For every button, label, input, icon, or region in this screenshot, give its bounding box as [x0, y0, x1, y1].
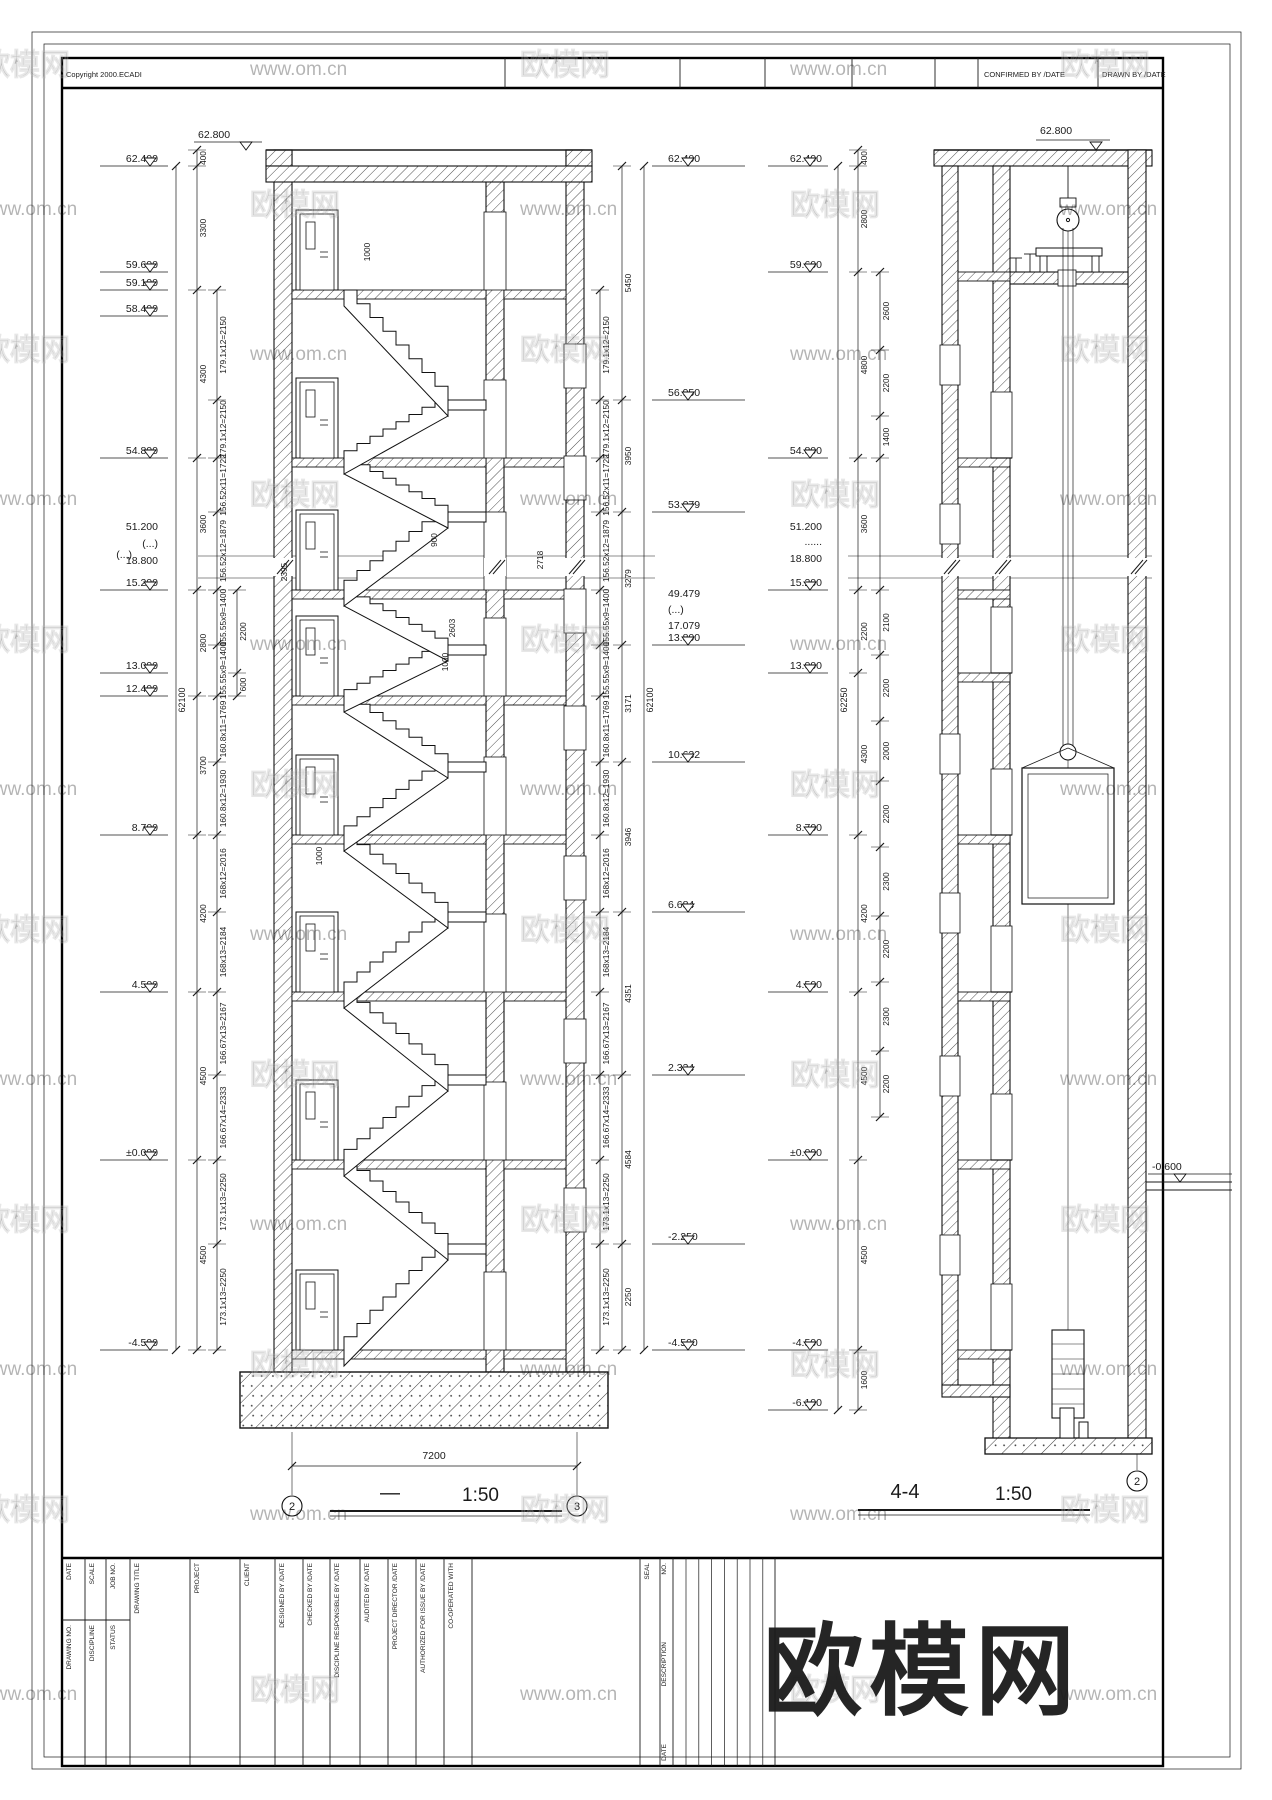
section-scale: 1:50 — [462, 1485, 499, 1506]
floor-dim: 3600 — [859, 514, 869, 533]
opening — [484, 380, 506, 458]
watermark-tile: www.om.cn — [249, 59, 347, 80]
opening — [484, 757, 506, 835]
door-vision-panel — [306, 522, 315, 549]
floor-dim: 3300 — [198, 218, 208, 237]
stair-flight — [344, 590, 448, 661]
title-cell-label: JOB NO. — [110, 1563, 117, 1589]
floor-dim: 4584 — [623, 1150, 633, 1169]
door-leaf — [300, 214, 334, 290]
wall — [292, 992, 486, 1001]
wall — [292, 290, 486, 299]
stair-flight — [344, 835, 448, 928]
car-sheave — [1060, 744, 1076, 760]
elevation-label: 18.800 — [790, 553, 822, 565]
section-title: 4-4 — [891, 1481, 920, 1503]
wall — [504, 992, 566, 1001]
title-column-label: AUDITED BY /DATE — [364, 1562, 371, 1622]
watermark-tile: www.om.cn — [0, 1359, 77, 1380]
overall-dim: 62100 — [645, 687, 655, 712]
watermark-tile: 欧模网 — [1060, 624, 1150, 657]
watermark-tile: 欧模网 — [790, 189, 880, 222]
inner-dim: 1000 — [314, 846, 324, 865]
floor-dim: 3600 — [198, 514, 208, 533]
opening — [484, 512, 506, 590]
title-column-label: CLIENT — [244, 1563, 251, 1586]
watermark-tile: 欧模网 — [0, 1494, 70, 1527]
title-column-label: PROJECT DIRECTOR /DATE — [392, 1562, 399, 1649]
elevation-label: -0.600 — [1152, 1161, 1182, 1173]
watermark-tile: 欧模网 — [1060, 1204, 1150, 1237]
floor-dim: 3279 — [623, 569, 633, 588]
window-opening — [940, 1056, 960, 1096]
wall — [958, 992, 1010, 1001]
wall — [958, 1160, 1010, 1169]
watermark-tile: 欧模网 — [1060, 49, 1150, 82]
stair-flight — [344, 1160, 448, 1260]
elevation-label: 51.200 — [126, 521, 158, 533]
stair-landing — [448, 512, 486, 522]
floor-dim: 4300 — [198, 364, 208, 383]
door-vision-panel — [306, 390, 315, 417]
opening — [484, 914, 506, 992]
title-cell-label: STATUS — [110, 1624, 117, 1649]
floor-dim: 400 — [859, 151, 869, 165]
stair-flight — [344, 696, 448, 778]
level-flag-icon — [240, 142, 252, 150]
stair-flight — [344, 1244, 448, 1366]
floor-dim: 4500 — [859, 1245, 869, 1264]
elevation-label: (...) — [142, 538, 158, 550]
inner-dim: 2718 — [535, 550, 545, 569]
opening-dim: 2200 — [881, 678, 891, 697]
watermark-tile: www.om.cn — [249, 1504, 347, 1525]
floor-dim: 4351 — [623, 984, 633, 1003]
wall — [266, 166, 592, 182]
stair-flight — [344, 992, 448, 1091]
wall — [504, 458, 566, 467]
inner-dim: 900 — [429, 533, 439, 547]
watermark-tile: www.om.cn — [519, 1069, 617, 1090]
shaft-door-opening — [991, 607, 1012, 673]
watermark-tile: www.om.cn — [789, 634, 887, 655]
watermark-tile: 欧模网 — [250, 479, 340, 512]
buffer — [1060, 1408, 1074, 1438]
door-vision-panel — [306, 222, 315, 249]
watermark-tile: www.om.cn — [249, 1214, 347, 1235]
floor-dim: 4200 — [859, 904, 869, 923]
window-opening — [940, 1235, 960, 1275]
wall — [292, 1160, 486, 1169]
confirmed-by-label: CONFIRMED BY /DATE — [984, 70, 1065, 79]
wall — [958, 458, 1010, 467]
watermark-tile: 欧模网 — [250, 1059, 340, 1092]
watermark-tile: 欧模网 — [520, 1204, 610, 1237]
machine-post — [1092, 256, 1099, 272]
watermark-tile: 欧模网 — [520, 624, 610, 657]
elevation-label: 49.479 — [668, 588, 700, 600]
flight-dim: 166.67x13=2167 — [601, 1002, 611, 1064]
opening-dim: 2200 — [881, 1074, 891, 1093]
watermark-tile: www.om.cn — [1059, 1069, 1157, 1090]
flight-dim: 160.8x12=1930 — [218, 769, 228, 827]
wall — [504, 1160, 566, 1169]
title-column-label: AUTHORIZED FOR ISSUE BY /DATE — [420, 1562, 427, 1673]
flight-dim: 166.67x14=2333 — [218, 1086, 228, 1148]
level-flag-icon — [1090, 142, 1102, 150]
title-column-label: DESIGNED BY /DATE — [279, 1562, 286, 1627]
floor-dim: 4500 — [198, 1245, 208, 1264]
watermark-tile: www.om.cn — [789, 1214, 887, 1235]
window-opening — [564, 856, 586, 900]
watermark-tile: 欧模网 — [790, 1349, 880, 1382]
floor-dim: 3171 — [623, 694, 633, 713]
line — [1068, 748, 1114, 768]
flight-dim: 156.52x11=1722 — [218, 454, 228, 516]
watermark-large: 欧模网 — [763, 1616, 1081, 1728]
flight-dim: 173.1x13=2250 — [218, 1268, 228, 1326]
cad-canvas: Copyright 2000.ECADI CONFIRMED BY /DATE … — [0, 0, 1272, 1800]
flight-dim: 168x13=2184 — [218, 926, 228, 977]
wall — [934, 150, 1152, 166]
opening-dim: 2300 — [881, 1007, 891, 1026]
wall — [292, 835, 486, 844]
section-scale: 1:50 — [995, 1484, 1032, 1505]
watermark-tile: 欧模网 — [250, 189, 340, 222]
watermark-tile: www.om.cn — [519, 489, 617, 510]
elevation-label: 62.800 — [1040, 125, 1072, 137]
machine-post — [1040, 256, 1047, 272]
window-opening — [940, 734, 960, 774]
level-flag-icon — [1174, 1174, 1186, 1182]
flight-dim: 160.8x11=1769 — [601, 700, 611, 757]
flight-dim: 179.1x12=2150 — [218, 400, 228, 458]
title-cell-label: DATE — [66, 1562, 73, 1580]
watermark-tile: www.om.cn — [0, 1684, 77, 1705]
floor-dim: 4300 — [859, 744, 869, 763]
machine-bedplate — [1036, 248, 1102, 256]
watermark-tile: www.om.cn — [0, 489, 77, 510]
watermark-tile: www.om.cn — [519, 779, 617, 800]
buffer — [1079, 1422, 1088, 1438]
flight-dim: 166.67x14=2333 — [601, 1086, 611, 1148]
flight-dim: 155.55x9=1400 — [218, 641, 228, 699]
flight-dim: 156.52x12=1879 — [601, 520, 611, 582]
watermark-tile: 欧模网 — [250, 769, 340, 802]
wall — [292, 696, 486, 705]
floor-dim: 4200 — [198, 904, 208, 923]
window-opening — [940, 893, 960, 933]
stair-landing — [448, 1075, 486, 1085]
wall — [958, 835, 1010, 844]
title-column-label: CHECKED BY /DATE — [307, 1562, 314, 1625]
overall-dim: 62250 — [839, 687, 849, 712]
flight-dim: 166.67x13=2167 — [218, 1002, 228, 1064]
watermark-tile: 欧模网 — [790, 1059, 880, 1092]
watermark-tile: www.om.cn — [249, 344, 347, 365]
door-leaf — [300, 1274, 334, 1350]
inner-dim: 1000 — [362, 242, 372, 261]
flight-dim: 173.1x13=2250 — [601, 1268, 611, 1326]
line — [1022, 748, 1068, 768]
flight-dim: 155.55x9=1400 — [218, 588, 228, 646]
opening-dim: 2100 — [881, 613, 891, 632]
watermark-tile: 欧模网 — [1060, 1494, 1150, 1527]
stair-landing — [448, 762, 486, 772]
opening-dim: 1400 — [881, 427, 891, 446]
door-leaf — [300, 1084, 334, 1160]
flight-dim: 168x12=2016 — [601, 848, 611, 899]
watermark-tile: www.om.cn — [789, 59, 887, 80]
stair-landing — [448, 1244, 486, 1254]
watermark-tile: 欧模网 — [0, 49, 70, 82]
watermark-tile: 欧模网 — [0, 1204, 70, 1237]
door-leaf — [300, 620, 334, 696]
opening-dim: 2600 — [881, 301, 891, 320]
floor-dim: 3700 — [198, 756, 208, 775]
wall — [566, 150, 592, 166]
wall — [292, 458, 486, 467]
watermark-tile: 欧模网 — [1060, 914, 1150, 947]
shaft-door-opening — [991, 1284, 1012, 1350]
copyright-text: Copyright 2000.ECADI — [66, 70, 142, 79]
floor-dim: 2800 — [198, 633, 208, 652]
title-column-label: CO-OPERATED WITH — [448, 1563, 455, 1629]
watermark-tile: www.om.cn — [519, 199, 617, 220]
stair-flight — [344, 458, 448, 528]
watermark-tile: 欧模网 — [250, 1674, 340, 1707]
watermark-tile: www.om.cn — [519, 1684, 617, 1705]
stair-section-drawing: 62.40059.60059.10058.40054.80051.200(...… — [100, 129, 745, 1516]
floor-dim: 3950 — [623, 446, 633, 465]
header-strip: Copyright 2000.ECADI CONFIRMED BY /DATE … — [66, 70, 1166, 79]
door-leaf — [300, 514, 334, 590]
title-cell-label: SCALE — [89, 1562, 96, 1584]
opening-dim: 2200 — [881, 373, 891, 392]
pit-floor — [985, 1438, 1152, 1454]
inner-dim: 2603 — [447, 618, 457, 637]
opening — [484, 1082, 506, 1160]
watermark-tile: 欧模网 — [1060, 334, 1150, 367]
seal-label: SEAL — [644, 1563, 651, 1580]
watermark-tile: www.om.cn — [249, 634, 347, 655]
wall — [958, 590, 1010, 599]
wall — [274, 150, 292, 1372]
generated-drawing: 62.40059.60059.10058.40054.80051.200(...… — [0, 49, 1232, 1766]
wall — [958, 673, 1010, 682]
flight-dim: 173.1x13=2250 — [218, 1173, 228, 1231]
opening-dim: 2300 — [881, 872, 891, 891]
break-note: (...) — [116, 549, 132, 561]
window-opening — [940, 504, 960, 544]
window-opening — [940, 345, 960, 385]
shaft-door-opening — [991, 392, 1012, 458]
watermark-tile: www.om.cn — [249, 924, 347, 945]
wall — [266, 150, 292, 166]
stair-landing — [448, 645, 486, 655]
wall — [958, 272, 1010, 281]
title-block: DATESCALEJOB NO.DRAWING NO.DISCIPLINESTA… — [62, 1558, 775, 1766]
elevation-label: 17.079 — [668, 620, 700, 632]
title-cell-label: DISCIPLINE — [89, 1624, 96, 1661]
shaft-door-opening — [991, 926, 1012, 992]
wall — [504, 696, 566, 705]
watermark-tile: 欧模网 — [520, 914, 610, 947]
wall — [958, 1350, 1010, 1359]
inner-dim: 2395 — [279, 562, 289, 581]
drawing-sheet: Copyright 2000.ECADI CONFIRMED BY /DATE … — [0, 0, 1272, 1800]
door-vision-panel — [306, 1282, 315, 1309]
watermark-tile: www.om.cn — [1059, 489, 1157, 510]
flight-dim: 168x12=2016 — [218, 848, 228, 899]
wall — [504, 290, 566, 299]
watermark-tile: 欧模网 — [790, 479, 880, 512]
opening — [484, 212, 506, 290]
opening — [484, 1272, 506, 1350]
elevation-label: 62.800 — [198, 129, 230, 141]
watermark-tile: www.om.cn — [0, 1069, 77, 1090]
watermark-tile: 欧模网 — [520, 334, 610, 367]
flight-dim: 156.52x12=1879 — [218, 520, 228, 582]
stair-flight — [344, 290, 448, 416]
stair-landing — [448, 912, 486, 922]
sub-dim: 600 — [238, 677, 248, 691]
window-opening — [564, 706, 586, 750]
flight-dim: 179.1x12=2150 — [601, 400, 611, 458]
elevation-label: 51.200 — [790, 521, 822, 533]
watermark-tile: www.om.cn — [789, 344, 887, 365]
opening-dim: 2200 — [881, 804, 891, 823]
shaft-door-opening — [991, 769, 1012, 835]
floor-dim: 4500 — [198, 1066, 208, 1085]
wall — [504, 835, 566, 844]
revision-header: DESCRIPTION — [661, 1642, 668, 1687]
overall-dim: 62100 — [177, 687, 187, 712]
watermark-tile: www.om.cn — [1059, 1359, 1157, 1380]
watermark-tile: www.om.cn — [1059, 199, 1157, 220]
flight-dim: 160.8x11=1769 — [218, 700, 228, 757]
watermark-tile: www.om.cn — [789, 924, 887, 945]
opening-dim: 2000 — [881, 741, 891, 760]
watermark-tile: 欧模网 — [0, 624, 70, 657]
flight-dim: 179.1x12=2150 — [218, 316, 228, 374]
watermark-tile: 欧模网 — [0, 914, 70, 947]
floor-dim: 5450 — [623, 273, 633, 292]
width-dim: 7200 — [422, 1450, 446, 1462]
watermark-tile: www.om.cn — [0, 779, 77, 800]
floor-dim: 3946 — [623, 827, 633, 846]
title-column-label: DRAWING TITLE — [134, 1562, 141, 1613]
section-title: — — [380, 1482, 400, 1504]
elevation-label: (...) — [668, 604, 684, 616]
watermark-tile: www.om.cn — [519, 1359, 617, 1380]
sub-dim: 2200 — [238, 622, 248, 641]
shaft-door-opening — [991, 1094, 1012, 1160]
door-vision-panel — [306, 1092, 315, 1119]
wall — [504, 1350, 566, 1359]
watermark-tile: www.om.cn — [1059, 779, 1157, 800]
watermark-tile: 欧模网 — [520, 1494, 610, 1527]
title-column-label: DISCIPLINE RESPONSIBLE BY /DATE — [334, 1562, 341, 1677]
watermark-tile: 欧模网 — [250, 1349, 340, 1382]
title-column-label: PROJECT — [194, 1563, 201, 1593]
wall — [504, 590, 566, 599]
stair-landing — [448, 400, 486, 410]
title-cell-label: DRAWING NO. — [66, 1625, 73, 1670]
watermark-tile: www.om.cn — [0, 199, 77, 220]
watermark-tile: 欧模网 — [790, 769, 880, 802]
opening — [484, 618, 506, 696]
floor-dim: 2250 — [623, 1287, 633, 1306]
window-opening — [564, 1019, 586, 1063]
revision-header: DATE — [661, 1743, 668, 1761]
inner-dim: 1000 — [440, 652, 450, 671]
revision-header: NO. — [661, 1563, 668, 1575]
watermark-tile: www.om.cn — [789, 1504, 887, 1525]
watermark-tile: 欧模网 — [0, 334, 70, 367]
grid-bubble-label: 2 — [1134, 1476, 1140, 1488]
wall — [942, 1385, 1010, 1397]
wall — [292, 590, 486, 599]
watermark-tile: 欧模网 — [520, 49, 610, 82]
elevation-label: ...... — [804, 536, 822, 548]
floor-dim: 400 — [198, 151, 208, 165]
door-leaf — [300, 382, 334, 458]
